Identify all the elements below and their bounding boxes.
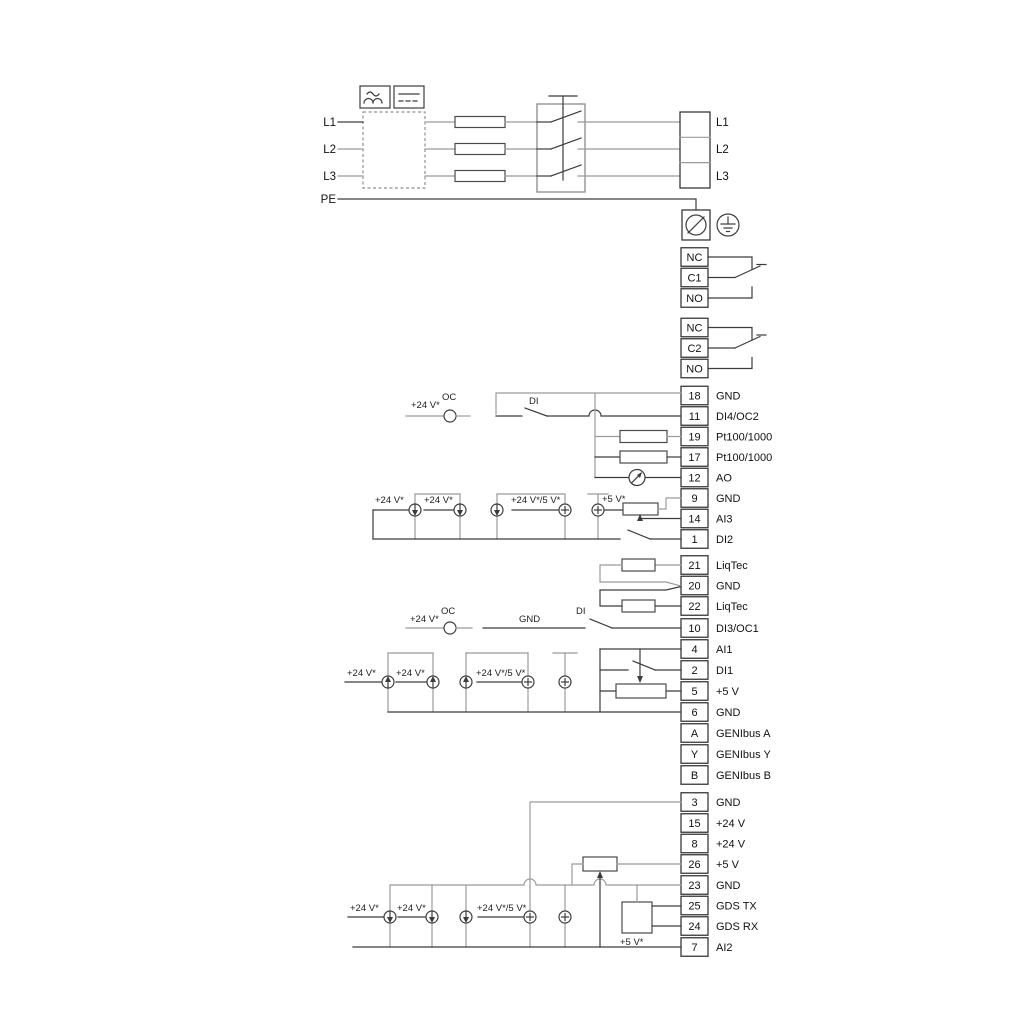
terminal-number: 8 bbox=[691, 839, 697, 851]
voltage-source-icon bbox=[559, 504, 571, 516]
current-source-down-icon bbox=[491, 504, 503, 516]
terminal-number: 26 bbox=[688, 859, 700, 871]
liqtec-sensor-symbol bbox=[622, 559, 655, 571]
phase-out-l3-label: L3 bbox=[716, 171, 729, 183]
di2-switch-symbol bbox=[628, 530, 650, 539]
plus24-5-annotation: +24 V*/5 V* bbox=[511, 495, 561, 506]
plus24-5-annotation: +24 V*/5 V* bbox=[476, 668, 526, 679]
terminal-label: LiqTec bbox=[716, 601, 748, 613]
relay1-c1-label: C1 bbox=[687, 273, 701, 285]
potentiometer-symbol bbox=[623, 503, 658, 515]
plus5-annotation: +5 V* bbox=[620, 937, 644, 948]
wiper-arrow-icon bbox=[637, 676, 643, 683]
relay1-no-label: NO bbox=[686, 293, 703, 305]
di-annotation: DI bbox=[529, 396, 539, 407]
oc-circle-icon bbox=[444, 410, 456, 422]
terminal-label: DI2 bbox=[716, 534, 733, 546]
terminal-number: 6 bbox=[691, 707, 697, 719]
oc-circle-icon bbox=[444, 622, 456, 634]
potentiometer-symbol bbox=[583, 857, 617, 871]
plus24-annotation: +24 V* bbox=[397, 903, 426, 914]
current-source-up-icon bbox=[382, 676, 394, 688]
voltage-source-icon bbox=[559, 911, 571, 923]
io-strip1-wiring: DI +24 V* OC bbox=[406, 392, 681, 486]
wiring-diagram-page: L1 L2 L3 PE bbox=[0, 0, 1024, 1024]
terminal-number: 24 bbox=[688, 921, 700, 933]
plus24-annotation: +24 V* bbox=[350, 903, 379, 914]
terminal-label: GND bbox=[716, 880, 741, 892]
relay2-nc-label: NC bbox=[687, 323, 703, 335]
terminal-label: Pt100/1000 bbox=[716, 432, 772, 444]
terminal-label: DI1 bbox=[716, 665, 733, 677]
terminal-number: 19 bbox=[688, 432, 700, 444]
current-source-up-icon bbox=[427, 676, 439, 688]
terminal-label: AO bbox=[716, 473, 732, 485]
terminal-number: 1 bbox=[691, 534, 697, 546]
terminal-label: AI2 bbox=[716, 942, 733, 954]
terminal-label: Pt100/1000 bbox=[716, 452, 772, 464]
terminal-label: GENIbus B bbox=[716, 770, 771, 782]
terminal-number: 17 bbox=[688, 452, 700, 464]
terminal-label: GENIbus Y bbox=[716, 749, 771, 761]
relay1-contact-symbol bbox=[708, 257, 766, 298]
terminal-number: 18 bbox=[688, 391, 700, 403]
plus24-annotation: +24 V* bbox=[410, 614, 439, 625]
earth-icon bbox=[717, 214, 739, 236]
terminal-number: 9 bbox=[691, 493, 697, 505]
relay2-contact-symbol bbox=[708, 328, 766, 369]
resistor-symbol bbox=[620, 451, 667, 463]
ai2-option-group: +24 V* +24 V* +24 V*/5 V* +5 V* bbox=[348, 802, 681, 948]
plus24-annotation: +24 V* bbox=[375, 495, 404, 506]
voltage-source-icon bbox=[524, 911, 536, 923]
terminal-label: GND bbox=[716, 797, 741, 809]
plus5-annotation: +5 V* bbox=[602, 494, 626, 505]
io-strip2: 10 4 2 5 6 A Y B DI3/OC1 AI1 DI1 +5 V GN… bbox=[681, 619, 771, 785]
ai1-option-group: +24 V* +24 V* +24 V*/5 V* bbox=[345, 649, 681, 712]
terminal-number: 22 bbox=[688, 601, 700, 613]
phase-l2-label: L2 bbox=[323, 144, 336, 156]
current-source-up-icon bbox=[460, 676, 472, 688]
plus24-5-annotation: +24 V*/5 V* bbox=[477, 903, 527, 914]
fuse-symbols bbox=[455, 117, 505, 182]
gds-sensor-box bbox=[622, 902, 652, 933]
io-strip1: 18 11 19 17 12 9 14 1 GND DI4/OC2 Pt100/… bbox=[681, 386, 772, 548]
main-switch-symbol bbox=[537, 96, 585, 192]
terminal-label: AI1 bbox=[716, 644, 733, 656]
phase-l3-label: L3 bbox=[323, 171, 336, 183]
terminal-number: 21 bbox=[688, 560, 700, 572]
terminal-label: GND bbox=[716, 707, 741, 719]
plus24-annotation: +24 V* bbox=[411, 400, 440, 411]
terminal-label: GND bbox=[716, 581, 741, 593]
phase-out-l2-label: L2 bbox=[716, 144, 729, 156]
relay1-section: NC C1 NO bbox=[681, 248, 766, 308]
terminal-label: +24 V bbox=[716, 839, 746, 851]
meter-icon bbox=[629, 470, 645, 486]
terminal-label: DI4/OC2 bbox=[716, 411, 759, 423]
oc-annotation: OC bbox=[442, 392, 456, 403]
resistor-symbol bbox=[620, 431, 667, 443]
terminal-label: +24 V bbox=[716, 818, 746, 830]
voltage-source-icon bbox=[522, 676, 534, 688]
terminal-number: 7 bbox=[691, 942, 697, 954]
terminal-number: 10 bbox=[688, 623, 700, 635]
relay2-section: NC C2 NO bbox=[681, 318, 766, 378]
terminal-number: 4 bbox=[691, 644, 697, 656]
terminal-number: 12 bbox=[688, 473, 700, 485]
terminal-label: GND bbox=[716, 493, 741, 505]
current-source-down-icon bbox=[409, 504, 421, 516]
current-source-down-icon bbox=[454, 504, 466, 516]
power-section: L1 L2 L3 PE bbox=[321, 86, 739, 240]
terminal-number: 14 bbox=[688, 514, 700, 526]
terminal-number: 15 bbox=[688, 818, 700, 830]
ac-symbol-icon bbox=[360, 86, 390, 108]
phase-l1-label: L1 bbox=[323, 117, 336, 129]
relay2-c2-label: C2 bbox=[687, 343, 701, 355]
di3-switch-symbol bbox=[590, 619, 612, 628]
wire-pe bbox=[338, 199, 696, 210]
di4-switch-symbol bbox=[525, 408, 547, 416]
terminal-number: Y bbox=[691, 749, 699, 761]
terminal-label: LiqTec bbox=[716, 560, 748, 572]
terminal-label: GDS TX bbox=[716, 901, 757, 913]
terminal-number: 5 bbox=[691, 686, 697, 698]
power-output-block bbox=[680, 112, 710, 188]
oc-annotation: OC bbox=[441, 606, 455, 617]
terminal-number: 3 bbox=[691, 797, 697, 809]
terminal-number: B bbox=[691, 770, 698, 782]
terminal-label: GND bbox=[716, 391, 741, 403]
di1-switch-symbol bbox=[633, 661, 655, 670]
current-source-down-icon bbox=[460, 911, 472, 923]
plus24-annotation: +24 V* bbox=[347, 668, 376, 679]
liqtec-section: 21 20 22 LiqTec GND LiqTec bbox=[600, 556, 748, 616]
potentiometer-symbol bbox=[616, 684, 666, 698]
voltage-source-icon bbox=[559, 676, 571, 688]
phase-out-l1-label: L1 bbox=[716, 117, 729, 129]
terminal-number: A bbox=[691, 728, 699, 740]
terminal-label: +5 V bbox=[716, 686, 740, 698]
terminal-number: 11 bbox=[689, 411, 700, 423]
relay2-no-label: NO bbox=[686, 364, 703, 376]
terminal-number: 2 bbox=[691, 665, 697, 677]
liqtec-sensor-symbol bbox=[622, 600, 655, 612]
wiring-diagram: L1 L2 L3 PE bbox=[0, 0, 1024, 1024]
pe-terminal-icon bbox=[682, 210, 710, 240]
plus24-annotation: +24 V* bbox=[396, 668, 425, 679]
relay1-nc-label: NC bbox=[687, 252, 703, 264]
terminal-label: AI3 bbox=[716, 514, 733, 526]
pe-label: PE bbox=[321, 194, 337, 206]
terminal-label: GDS RX bbox=[716, 921, 759, 933]
terminal-number: 23 bbox=[688, 880, 700, 892]
terminal-label: DI3/OC1 bbox=[716, 623, 759, 635]
filter-box bbox=[363, 112, 425, 188]
terminal-number: 20 bbox=[688, 581, 700, 593]
current-source-down-icon bbox=[384, 911, 396, 923]
wiper-arrow-icon bbox=[597, 871, 603, 878]
ai3-option-group: +24 V* +24 V* +24 V*/5 V* +5 V* bbox=[373, 494, 681, 539]
dc-symbol-icon bbox=[394, 86, 424, 108]
terminal-label: GENIbus A bbox=[716, 728, 771, 740]
gnd-annotation: GND bbox=[519, 614, 540, 625]
voltage-source-icon bbox=[592, 504, 604, 516]
terminal-label: +5 V bbox=[716, 859, 740, 871]
terminal-number: 25 bbox=[688, 901, 700, 913]
plus24-annotation: +24 V* bbox=[424, 495, 453, 506]
current-source-down-icon bbox=[426, 911, 438, 923]
io-strip3: 3 15 8 26 23 25 24 7 GND +24 V +24 V +5 … bbox=[681, 793, 759, 957]
di-annotation: DI bbox=[576, 606, 586, 617]
